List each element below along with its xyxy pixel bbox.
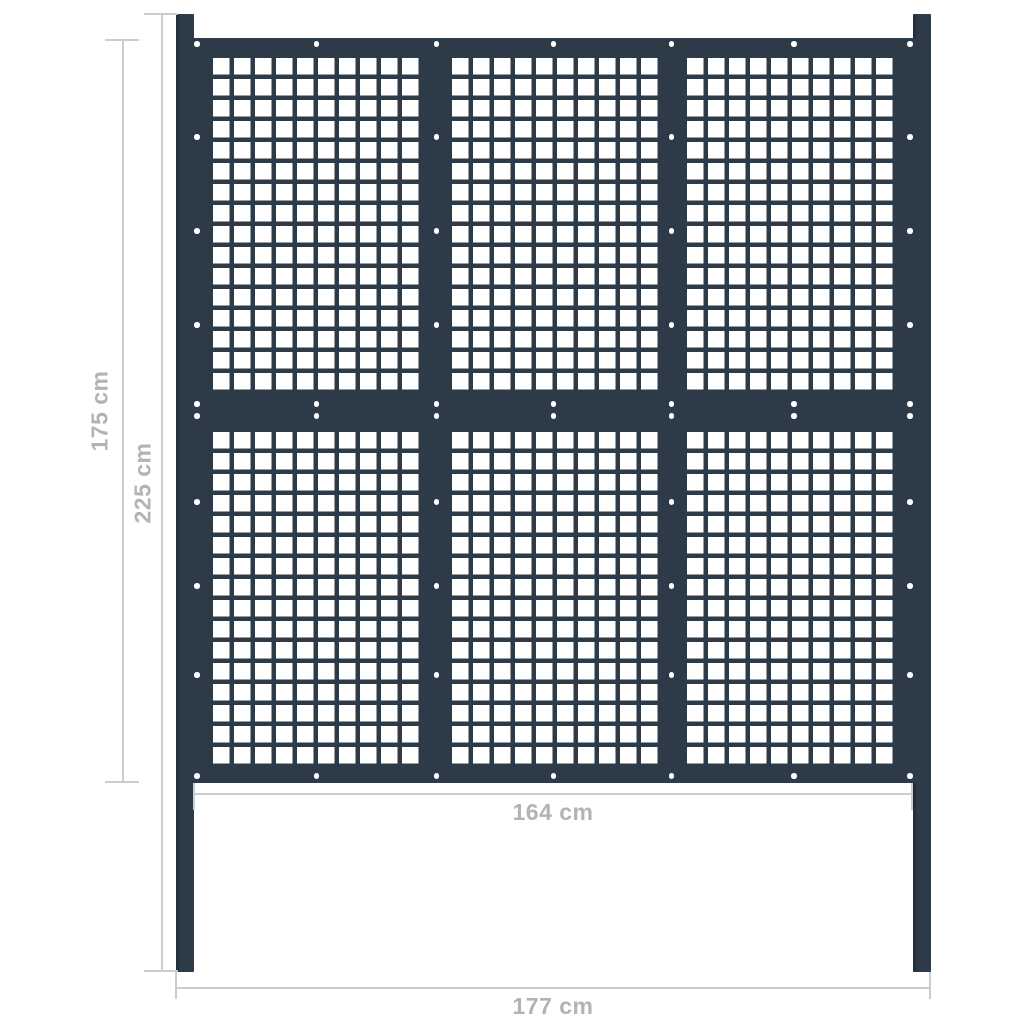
screw-dot bbox=[907, 499, 913, 505]
screw-dot bbox=[434, 134, 440, 140]
dim-tick-total-width-left bbox=[175, 972, 177, 999]
dim-line-panel-width bbox=[194, 793, 913, 795]
dim-tick-total-width-right bbox=[929, 972, 931, 999]
screw-dot bbox=[669, 413, 675, 419]
screw-dot bbox=[194, 672, 200, 678]
screw-dot bbox=[194, 401, 200, 407]
screw-dot bbox=[194, 499, 200, 505]
screw-dot bbox=[791, 41, 797, 47]
screw-dot bbox=[669, 401, 675, 407]
screw-dot bbox=[194, 134, 200, 140]
screw-dot bbox=[907, 228, 913, 234]
screw-dot bbox=[194, 413, 200, 419]
dim-line-total-height bbox=[161, 14, 163, 972]
screw-dot bbox=[669, 134, 675, 140]
screw-dot bbox=[434, 228, 440, 234]
mesh-section-top-right bbox=[687, 58, 893, 390]
dim-cap-total-height-bottom bbox=[144, 970, 178, 972]
dim-line-panel-height bbox=[122, 40, 124, 783]
screw-dot bbox=[434, 583, 440, 589]
screw-dot bbox=[669, 672, 675, 678]
mesh-section-bottom-right bbox=[687, 432, 893, 764]
screw-dot bbox=[194, 228, 200, 234]
screw-dot bbox=[669, 41, 675, 47]
screw-dot bbox=[551, 413, 557, 419]
screw-dot bbox=[434, 41, 440, 47]
screw-dot bbox=[907, 134, 913, 140]
screw-dot bbox=[551, 401, 557, 407]
screw-dot bbox=[194, 583, 200, 589]
dim-tick-panel-width-left bbox=[193, 783, 195, 810]
screw-dot bbox=[669, 322, 675, 328]
dim-cap-total-height-top bbox=[144, 13, 178, 15]
screw-dot bbox=[551, 41, 557, 47]
screw-dot bbox=[669, 583, 675, 589]
screw-dot bbox=[907, 322, 913, 328]
screw-dot bbox=[907, 773, 913, 779]
screw-dot bbox=[194, 41, 200, 47]
screw-dot bbox=[791, 773, 797, 779]
screw-dot bbox=[907, 41, 913, 47]
screw-dot bbox=[907, 413, 913, 419]
mesh-section-bottom-middle bbox=[452, 432, 658, 764]
screw-dot bbox=[314, 413, 320, 419]
screw-dot bbox=[434, 401, 440, 407]
screw-dot bbox=[194, 773, 200, 779]
screw-dot bbox=[791, 413, 797, 419]
dim-tick-panel-width-right bbox=[911, 783, 913, 810]
screw-dot bbox=[314, 41, 320, 47]
dim-label-panel-width: 164 cm bbox=[512, 799, 593, 826]
dim-cap-panel-height-bottom bbox=[105, 781, 139, 783]
screw-dot bbox=[669, 773, 675, 779]
screw-dot bbox=[434, 413, 440, 419]
screw-dot bbox=[434, 672, 440, 678]
screw-dot bbox=[669, 228, 675, 234]
screw-dot bbox=[314, 401, 320, 407]
dim-label-total-height: 225 cm bbox=[130, 442, 157, 523]
screw-dot bbox=[907, 583, 913, 589]
screw-dot bbox=[907, 672, 913, 678]
dim-line-total-width bbox=[176, 987, 931, 989]
dim-label-panel-height: 175 cm bbox=[87, 370, 114, 451]
screw-dot bbox=[434, 322, 440, 328]
screw-dot bbox=[551, 773, 557, 779]
mesh-section-top-middle bbox=[452, 58, 658, 390]
screw-dot bbox=[907, 401, 913, 407]
fence-dimension-diagram: 175 cm 225 cm 164 cm 177 cm bbox=[0, 0, 1024, 1024]
screw-dot bbox=[669, 499, 675, 505]
dim-label-total-width: 177 cm bbox=[512, 993, 593, 1020]
mesh-section-bottom-left bbox=[213, 432, 419, 764]
dim-cap-panel-height-top bbox=[105, 39, 139, 41]
screw-dot bbox=[434, 499, 440, 505]
screw-dot bbox=[434, 773, 440, 779]
screw-dot bbox=[314, 773, 320, 779]
screw-dot bbox=[194, 322, 200, 328]
mesh-section-top-left bbox=[213, 58, 419, 390]
screw-dot bbox=[791, 401, 797, 407]
